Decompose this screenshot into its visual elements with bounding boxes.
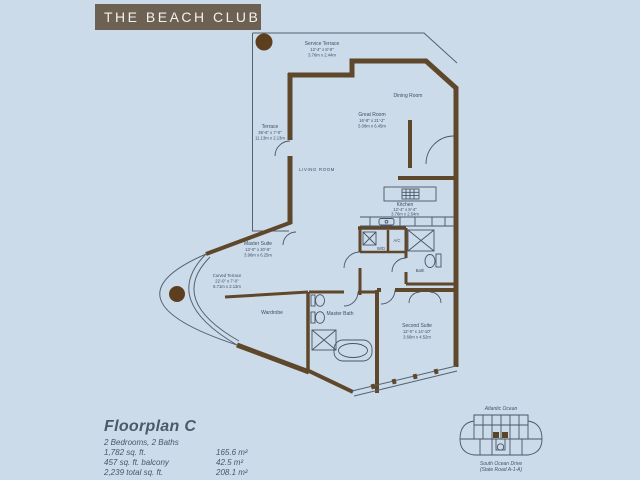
- keyplan-unit-marker-2: [502, 432, 508, 438]
- door-master-suite: [283, 232, 296, 245]
- label-great-room-m: 5.08m x 6.45m: [358, 124, 386, 129]
- door-corridor: [344, 252, 360, 268]
- fixtures: [311, 187, 455, 361]
- bidet-master: [316, 312, 325, 324]
- label-second-suite-ft: 12'-0" x 14'-10": [403, 329, 432, 334]
- toilet-tank-hall: [436, 254, 441, 267]
- floorplan-configuration: 2 Bedrooms, 2 Baths: [104, 438, 294, 447]
- label-second-suite-m: 3.66m x 4.52m: [403, 335, 431, 340]
- label-master-suite-ft: 13'-0" x 20'-6": [245, 247, 271, 252]
- floorplan-name: Floorplan C: [104, 418, 294, 436]
- area-interior-imperial: 1,782 sq. ft.: [104, 448, 216, 457]
- unit-walls: [206, 61, 456, 393]
- shower-master-x: [312, 330, 336, 350]
- keyplan-street-label-2: (State Road A-1-A): [480, 467, 523, 473]
- cooktop-grate: [402, 189, 419, 199]
- door-swings: [275, 136, 454, 306]
- area-row-balcony: 457 sq. ft. balcony 42.5 m²: [104, 458, 294, 467]
- toilet-tank-master-2: [311, 312, 315, 323]
- label-master-bath: Master Bath: [327, 311, 354, 317]
- sink-drain: [385, 220, 388, 223]
- shower-x: [408, 230, 434, 251]
- area-row-total: 2,239 total sq. ft. 208.1 m²: [104, 468, 294, 477]
- label-curved-terrace: Curved Terrace: [213, 273, 242, 278]
- window-mullion: [392, 379, 397, 385]
- floor-plan: Service Terrace 12'-4" x 8'-0" 3.76m x 2…: [0, 0, 640, 480]
- window-line-2: [354, 371, 457, 396]
- terrace-planter-circle-top: [256, 34, 273, 51]
- area-balcony-imperial: 457 sq. ft. balcony: [104, 458, 216, 467]
- toilet-master: [316, 295, 325, 307]
- window-line-1: [352, 366, 456, 391]
- kitchen-sink-icon: [379, 219, 394, 226]
- window-mullion: [371, 384, 376, 390]
- door-dining-opening: [426, 136, 454, 164]
- washer-dryer-cross: [363, 232, 376, 245]
- window-mullion: [434, 369, 439, 375]
- key-plan: Atlantic Ocean South Ocean Drive (State …: [460, 406, 542, 473]
- label-bath: Bath: [416, 268, 425, 273]
- curved-glass-wall: [189, 254, 239, 345]
- label-terrace-ft: 36'-6" x 7'-0": [258, 130, 282, 135]
- door-second-suite: [381, 290, 395, 304]
- keyplan-porte-cochere: [497, 444, 503, 450]
- label-dining-room: Dining Room: [394, 93, 423, 99]
- area-balcony-metric: 42.5 m²: [216, 458, 294, 467]
- label-terrace-m: 11.13m x 2.13m: [255, 136, 285, 141]
- wall-wardrobe-top: [225, 292, 308, 297]
- closet-door-left: [409, 292, 420, 303]
- toilet-hall-bath: [425, 255, 435, 268]
- keyplan-ocean-label: Atlantic Ocean: [484, 406, 518, 412]
- terrace-planter-circle-left: [169, 286, 185, 302]
- door-master-bath: [344, 292, 358, 306]
- label-curved-terrace-ft: 22'-0" x 7'-0": [215, 279, 239, 284]
- area-total-metric: 208.1 m²: [216, 468, 294, 477]
- door-hall-bath: [392, 258, 406, 272]
- label-great-room-ft: 16'-8" x 21'-2": [359, 118, 385, 123]
- closet-door-right: [430, 292, 441, 303]
- floorplan-summary: Floorplan C 2 Bedrooms, 2 Baths 1,782 sq…: [104, 418, 294, 477]
- label-service-terrace-m: 3.76m x 2.44m: [308, 53, 336, 58]
- window-mullion: [413, 374, 418, 380]
- kitchen-counter: [360, 217, 455, 226]
- bathtub-basin: [339, 344, 368, 358]
- label-ac: A/C: [394, 238, 401, 243]
- wall-wing-bottom: [237, 345, 309, 372]
- label-curved-terrace-m: 6.71m x 2.13m: [213, 284, 241, 289]
- glass-wall-inner: [194, 257, 239, 341]
- area-row-interior: 1,782 sq. ft. 165.6 m²: [104, 448, 294, 457]
- area-interior-metric: 165.6 m²: [216, 448, 294, 457]
- toilet-tank-master-1: [311, 295, 315, 306]
- label-wd: W/D: [377, 246, 385, 251]
- label-wardrobe: Wardrobe: [261, 310, 283, 316]
- cooktop-icon: [402, 189, 419, 199]
- wall-outer: [288, 61, 456, 367]
- area-total-imperial: 2,239 total sq. ft.: [104, 468, 216, 477]
- label-service-terrace-ft: 12'-4" x 8'-0": [310, 47, 334, 52]
- wall-masterbath-bottom: [309, 371, 353, 392]
- label-living-room: LIVING ROOM: [299, 167, 335, 172]
- label-kitchen-m: 3.76m x 2.54m: [391, 212, 419, 217]
- label-master-suite-m: 3.96m x 6.25m: [244, 253, 272, 258]
- keyplan-unit-marker-1: [493, 432, 499, 438]
- door-terrace: [275, 141, 290, 156]
- window-wall-angled: [352, 366, 457, 396]
